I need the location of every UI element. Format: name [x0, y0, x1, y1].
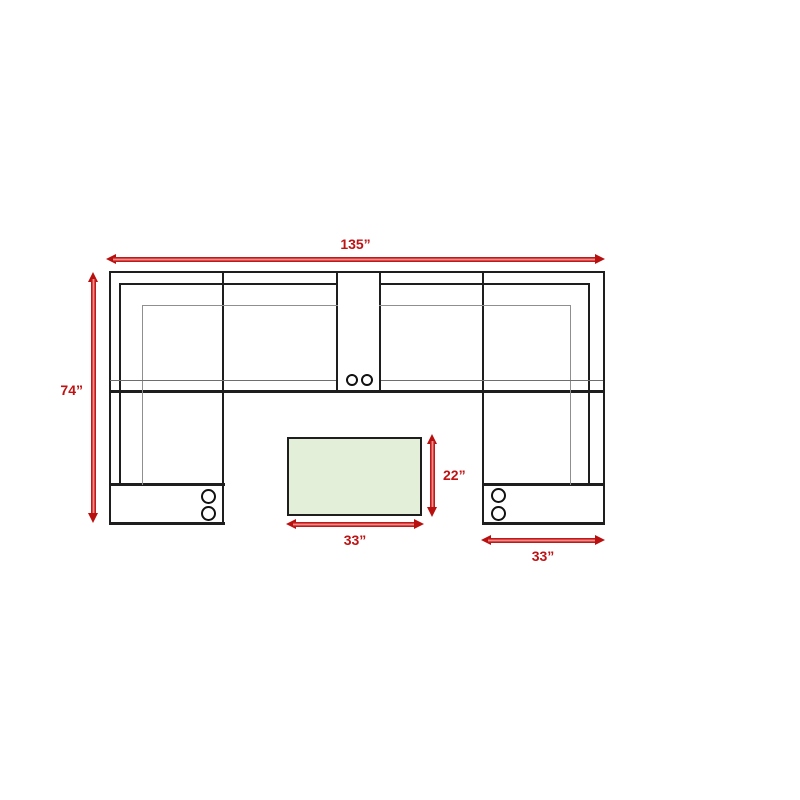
dim-shaft — [430, 441, 435, 510]
ottoman-table — [287, 437, 422, 516]
left-armrest-cupholder-icon — [201, 489, 216, 504]
sofa-outer-right-line — [603, 271, 605, 524]
arrowhead-right-icon — [414, 519, 424, 529]
left-cushion-detail-hline — [142, 305, 338, 306]
right-armrest-cupholder-icon — [491, 506, 506, 521]
dim-overall-depth: 74” — [88, 272, 99, 523]
right-chaise-bottom-line — [482, 522, 605, 525]
console-cupholder-icon — [361, 374, 373, 386]
left-seat-edge-detail-line — [110, 380, 336, 381]
dim-overall-width: 135” — [106, 254, 605, 265]
right-cushion-detail-vline — [570, 305, 571, 485]
dim-table-depth: 22” — [427, 434, 438, 517]
left-arm-inner-line — [119, 283, 121, 485]
left-cushion-detail-vline — [142, 305, 143, 485]
right-armrest-top-line — [482, 483, 605, 486]
dim-shaft — [91, 279, 96, 516]
left-section-divider-line — [222, 271, 224, 524]
console-left-line — [336, 271, 338, 392]
sofa-outer-left-line — [109, 271, 111, 524]
seat-front-line — [109, 390, 605, 393]
console-cupholder-icon — [346, 374, 358, 386]
dim-shaft — [113, 257, 598, 262]
arrowhead-right-icon — [595, 254, 605, 264]
sofa-outer-top-line — [109, 271, 605, 273]
left-chaise-bottom-line — [109, 522, 225, 525]
arrowhead-down-icon — [427, 507, 437, 517]
dim-table-width: 33” — [286, 519, 424, 530]
right-section-divider-line — [482, 271, 484, 524]
dim-overall-depth-label: 74” — [43, 382, 83, 398]
dim-shaft — [488, 538, 598, 543]
right-armrest-cupholder-icon — [491, 488, 506, 503]
backrest-right-line — [379, 283, 590, 285]
arrowhead-right-icon — [595, 535, 605, 545]
right-cushion-detail-hline — [379, 305, 571, 306]
left-armrest-top-line — [109, 483, 225, 486]
dim-overall-width-label: 135” — [106, 236, 605, 252]
dim-shaft — [293, 522, 417, 527]
dim-right-chaise-width: 33” — [481, 535, 605, 546]
right-arm-inner-line — [588, 283, 590, 485]
console-right-line — [379, 271, 381, 392]
arrowhead-down-icon — [88, 513, 98, 523]
dim-right-chaise-width-label: 33” — [481, 548, 605, 564]
left-armrest-cupholder-icon — [201, 506, 216, 521]
dim-table-depth-label: 22” — [443, 467, 483, 483]
right-seat-edge-detail-line — [381, 380, 603, 381]
backrest-left-line — [119, 283, 338, 285]
dim-table-width-label: 33” — [286, 532, 424, 548]
floorplan-canvas: 135” 74” 22” 33” 33” — [0, 0, 800, 800]
